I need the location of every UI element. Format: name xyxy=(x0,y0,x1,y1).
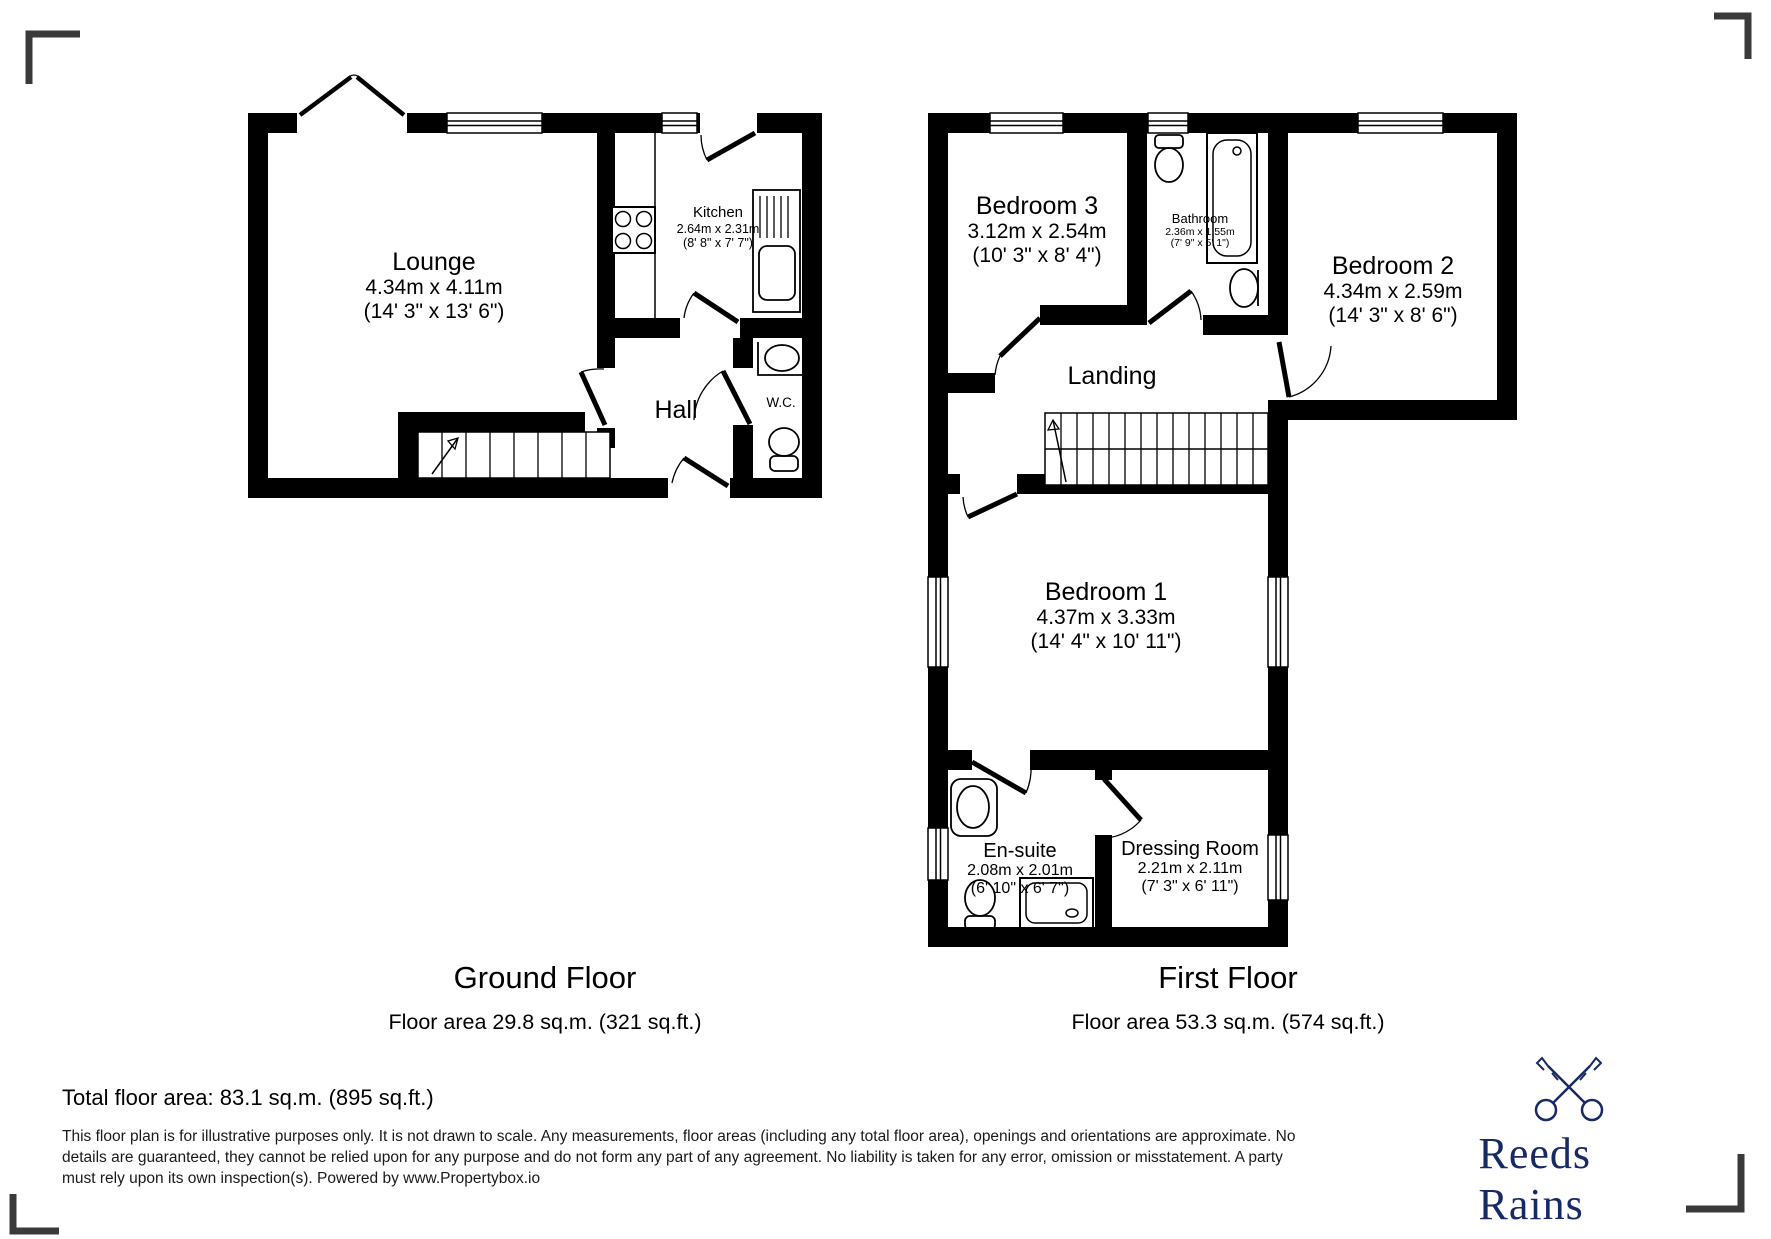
room-name: Hall xyxy=(654,396,697,424)
disclaimer-line: This floor plan is for illustrative purp… xyxy=(62,1126,1295,1147)
room-label-lounge: Lounge 4.34m x 4.11m (14' 3" x 13' 6") xyxy=(364,248,505,323)
room-name: Landing xyxy=(1068,362,1157,390)
room-dim-metric: 2.21m x 2.11m xyxy=(1121,860,1259,878)
corner-bottom-right xyxy=(1686,1154,1741,1209)
corner-top-left xyxy=(29,34,80,84)
room-label-wc: W.C. xyxy=(766,395,795,410)
corner-bottom-left xyxy=(13,1194,59,1231)
bathroom-basin-icon xyxy=(1230,269,1258,307)
stairs xyxy=(1045,413,1268,485)
wc-basin-icon xyxy=(758,342,806,375)
french-door-icon xyxy=(300,75,404,115)
room-label-ensuite: En-suite 2.08m x 2.01m (6' 10" x 6' 7") xyxy=(967,840,1073,898)
room-name: Bedroom 2 xyxy=(1324,252,1463,280)
room-label-bedroom1: Bedroom 1 4.37m x 3.33m (14' 4" x 10' 11… xyxy=(1031,578,1182,653)
floorplan-canvas xyxy=(0,0,1771,1239)
room-label-bathroom: Bathroom 2.36m x 1.55m (7' 9" x 5' 1") xyxy=(1165,212,1234,250)
room-dim-metric: 4.37m x 3.33m xyxy=(1031,606,1182,630)
room-dim-metric: 4.34m x 2.59m xyxy=(1324,280,1463,304)
stairs xyxy=(418,432,610,478)
room-name: Lounge xyxy=(364,248,505,276)
disclaimer-line: details are guaranteed, they cannot be r… xyxy=(62,1147,1295,1168)
room-label-hall: Hall xyxy=(654,396,697,424)
room-name: Bedroom 3 xyxy=(968,192,1107,220)
room-name: Dressing Room xyxy=(1121,838,1259,860)
room-dim-imperial: (7' 9" x 5' 1") xyxy=(1165,238,1234,250)
kitchen-sink-icon xyxy=(753,190,800,312)
room-dim-imperial: (10' 3" x 8' 4") xyxy=(968,244,1107,268)
room-dim-imperial: (14' 3" x 13' 6") xyxy=(364,300,505,324)
floorplan-page: { "ground_floor": { "title": "Ground Flo… xyxy=(0,0,1771,1239)
total-floor-area: Total floor area: 83.1 sq.m. (895 sq.ft.… xyxy=(62,1085,434,1111)
room-dim-imperial: (14' 3" x 8' 6") xyxy=(1324,304,1463,328)
crossed-keys-icon xyxy=(1536,1058,1602,1120)
room-dim-metric: 2.64m x 2.31m xyxy=(677,222,760,236)
first-floor-area: Floor area 53.3 sq.m. (574 sq.ft.) xyxy=(1071,1010,1384,1035)
room-dim-metric: 4.34m x 4.11m xyxy=(364,276,505,300)
room-name: En-suite xyxy=(967,840,1073,862)
room-dim-imperial: (14' 4" x 10' 11") xyxy=(1031,630,1182,654)
room-name: W.C. xyxy=(766,395,795,410)
room-dim-metric: 3.12m x 2.54m xyxy=(968,220,1107,244)
toilet-icon xyxy=(769,428,799,471)
disclaimer-text: This floor plan is for illustrative purp… xyxy=(62,1126,1295,1189)
ground-floor-title: Ground Floor xyxy=(454,960,637,996)
room-name: Bathroom xyxy=(1165,212,1234,227)
room-label-dressing-room: Dressing Room 2.21m x 2.11m (7' 3" x 6' … xyxy=(1121,838,1259,896)
hob-icon xyxy=(612,207,655,253)
ground-floor-plan xyxy=(248,75,822,498)
room-label-bedroom3: Bedroom 3 3.12m x 2.54m (10' 3" x 8' 4") xyxy=(968,192,1107,267)
disclaimer-line: must rely upon its own inspection(s). Po… xyxy=(62,1168,1295,1189)
corner-top-right xyxy=(1714,16,1748,59)
toilet-icon xyxy=(1155,135,1183,182)
brand-logo-text: Reeds Rains xyxy=(1479,1128,1674,1230)
room-dim-imperial: (7' 3" x 6' 11") xyxy=(1121,878,1259,896)
ground-floor-area: Floor area 29.8 sq.m. (321 sq.ft.) xyxy=(388,1010,701,1035)
room-dim-imperial: (8' 8" x 7' 7") xyxy=(677,236,760,250)
first-floor-title: First Floor xyxy=(1158,960,1298,996)
room-dim-metric: 2.08m x 2.01m xyxy=(967,862,1073,880)
room-dim-imperial: (6' 10" x 6' 7") xyxy=(967,880,1073,898)
frame-corner-marks xyxy=(13,16,1748,1231)
room-name: Kitchen xyxy=(677,205,760,222)
ensuite-basin-icon xyxy=(951,779,997,836)
room-label-kitchen: Kitchen 2.64m x 2.31m (8' 8" x 7' 7") xyxy=(677,205,760,250)
room-label-bedroom2: Bedroom 2 4.34m x 2.59m (14' 3" x 8' 6") xyxy=(1324,252,1463,327)
room-label-landing: Landing xyxy=(1068,362,1157,390)
room-name: Bedroom 1 xyxy=(1031,578,1182,606)
